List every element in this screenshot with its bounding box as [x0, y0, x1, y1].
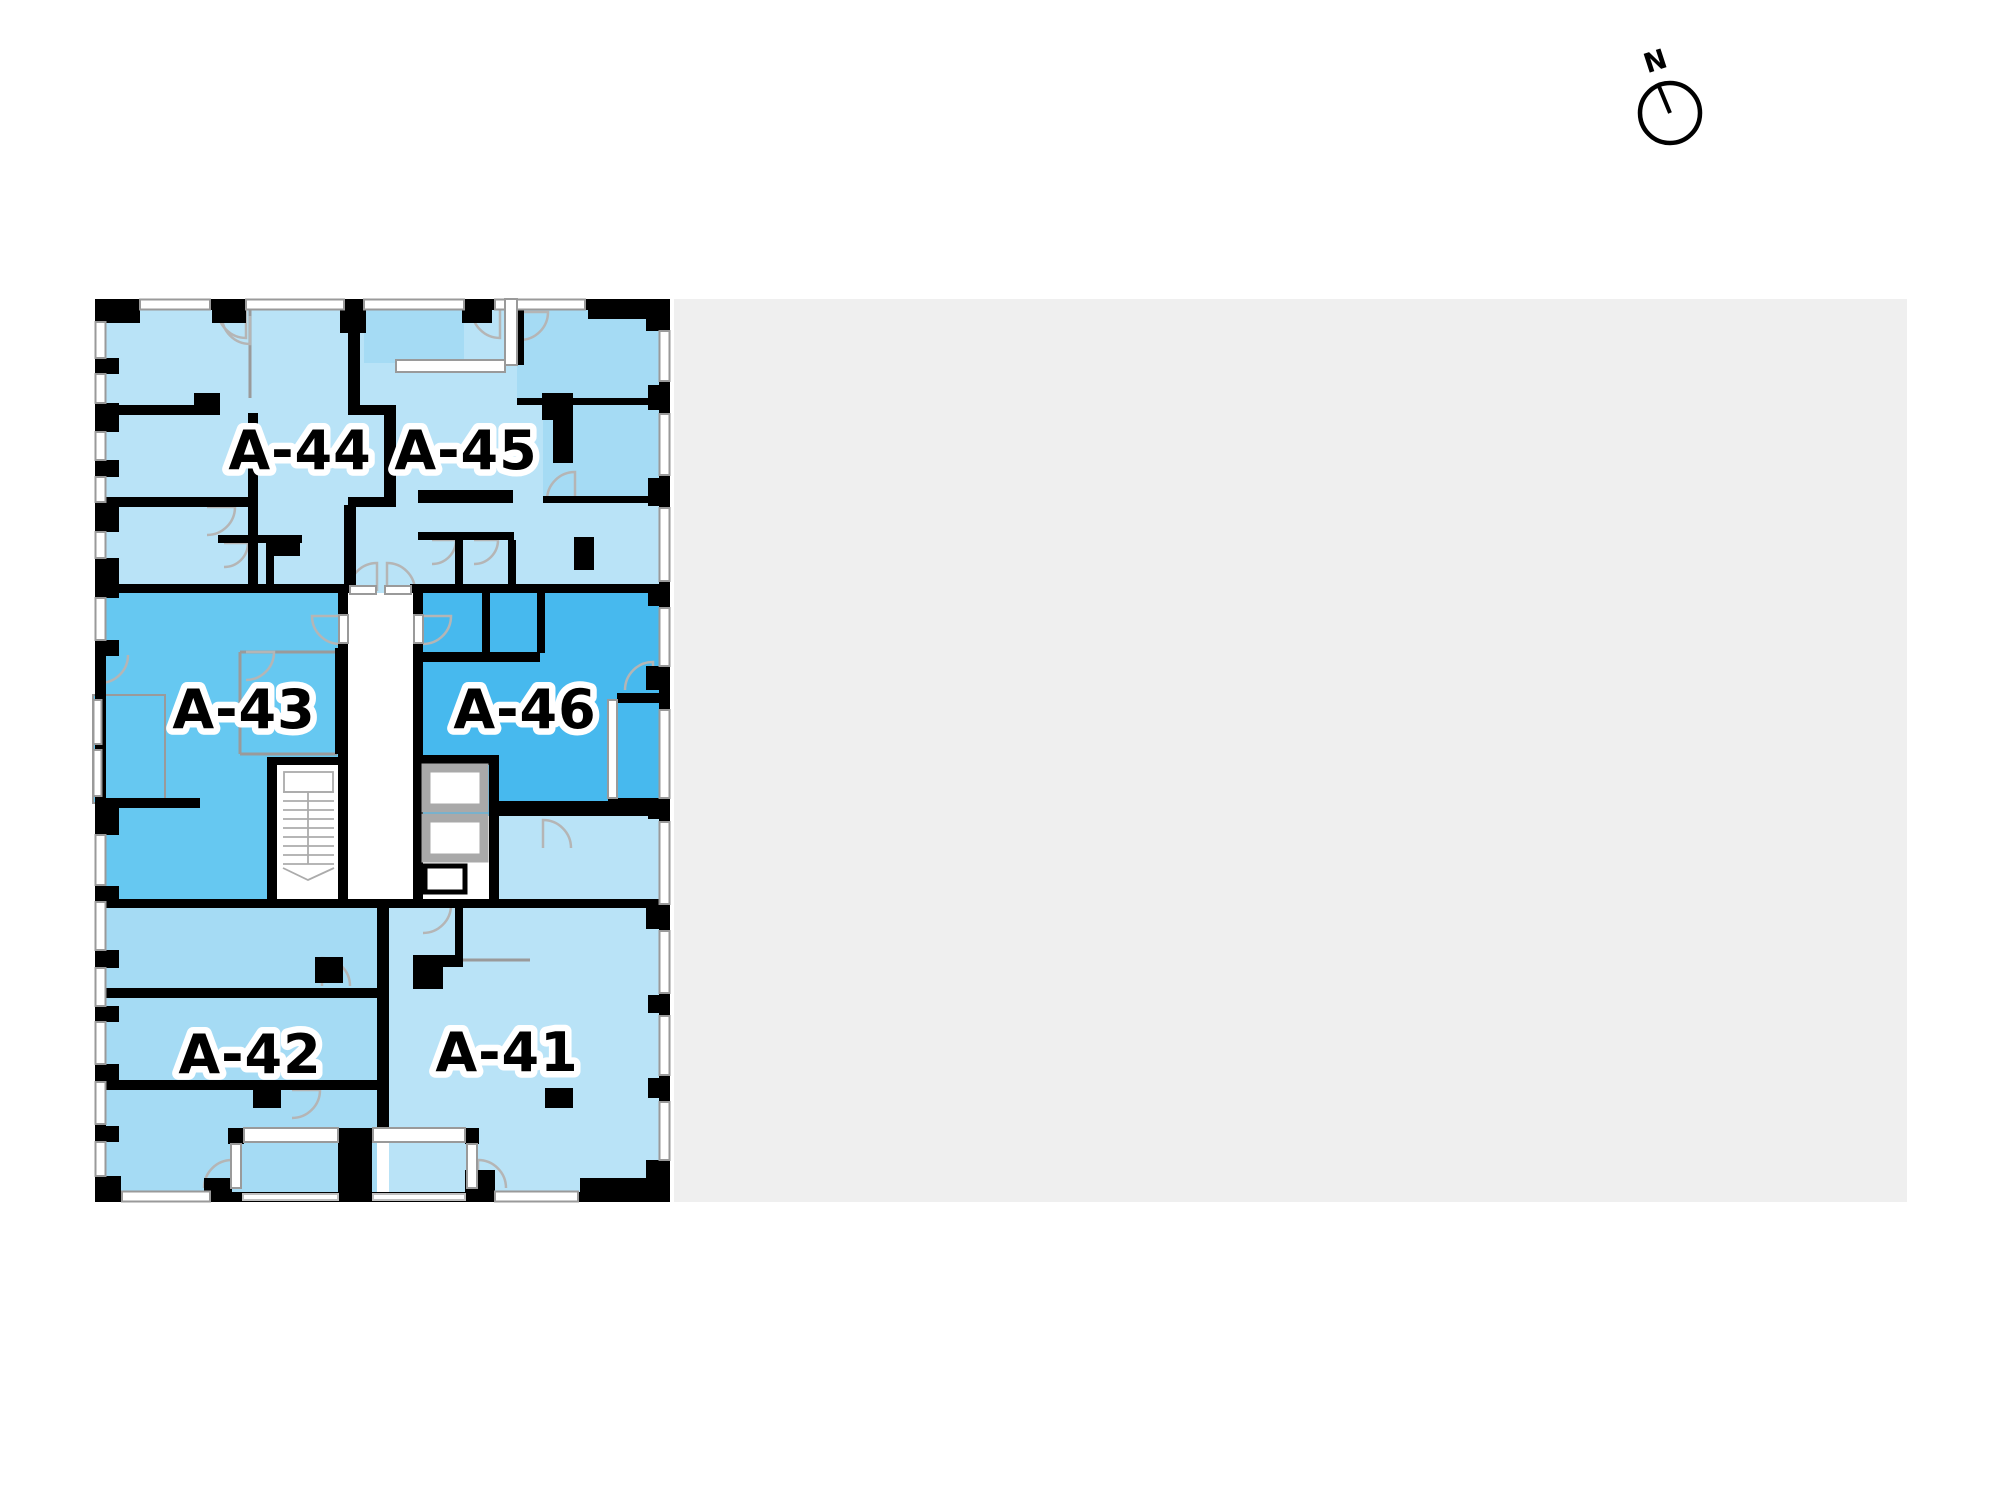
service-shaft [425, 866, 465, 892]
unit-label-a43[interactable]: A-43 [172, 678, 315, 741]
compass-north-label: N [1640, 44, 1671, 80]
door-sill [339, 615, 348, 643]
corridor [348, 593, 413, 899]
unit-label-a44[interactable]: A-44 [228, 419, 371, 482]
door-sill [385, 586, 411, 594]
unit-label-a42[interactable]: A-42 [178, 1023, 321, 1086]
unit-label-a45[interactable]: A-45 [394, 419, 537, 482]
floor-plan: A-44 A-45 A-43 A-46 A-42 A-41 [93, 299, 670, 1202]
site-area [674, 299, 1907, 1202]
door-sill [414, 615, 423, 643]
unit-label-a46[interactable]: A-46 [453, 678, 596, 741]
unit-a41-region [495, 816, 659, 900]
floor-plan-page: A-44 A-45 A-43 A-46 A-42 A-41 N [0, 0, 2001, 1501]
elevator-1 [426, 768, 484, 808]
door-sill [350, 586, 376, 594]
elevator-2 [426, 818, 484, 858]
unit-label-a41[interactable]: A-41 [435, 1021, 578, 1084]
north-indicator: N [1640, 44, 1700, 143]
